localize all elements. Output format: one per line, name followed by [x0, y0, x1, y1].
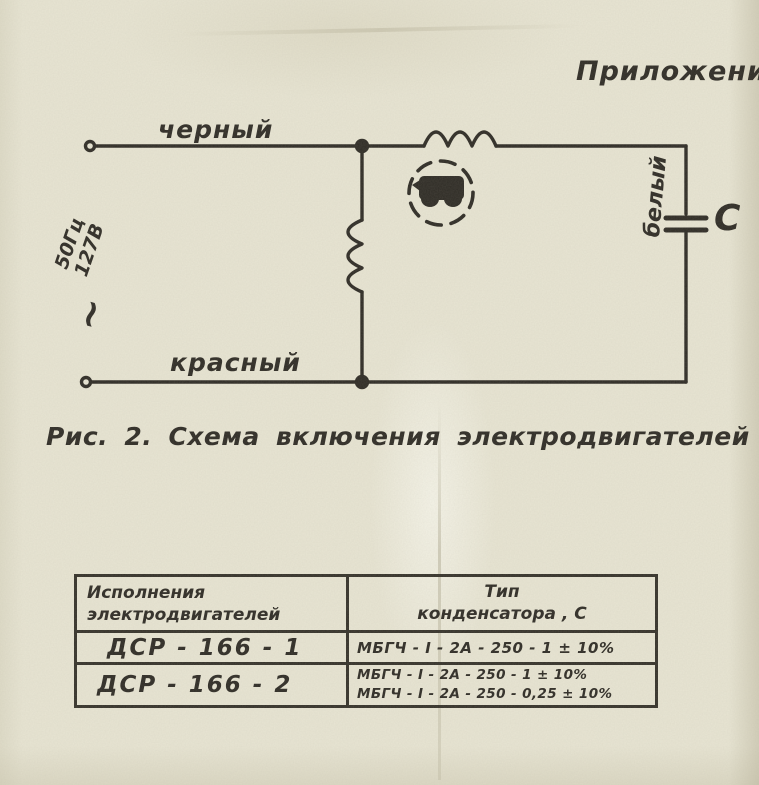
motor-type-1: ДСР - 166 - 1: [107, 635, 302, 661]
table-row: ДСР - 166 - 1: [77, 633, 349, 665]
table-header-capacitor-line1: Тип: [349, 581, 655, 603]
top-wire-label: черный: [158, 115, 273, 144]
appendix-heading: Приложение: [576, 56, 759, 87]
figure-caption: Рис. 2. Схема включения электродвигателе…: [46, 422, 750, 451]
motor-symbol: [409, 161, 473, 225]
bottom-wire-label: красный: [170, 348, 301, 377]
main-winding-coil: [348, 220, 362, 292]
table-header-capacitor-line2: конденсатора , С: [349, 603, 655, 625]
source-terminal-bottom: [82, 378, 91, 387]
junction-dot-bottom: [357, 377, 368, 388]
motor-type-2: ДСР - 166 - 2: [97, 672, 292, 698]
table-header-capacitor-type: Тип конденсатора , С: [349, 577, 655, 633]
table-header-motor-line1: Исполнения: [87, 582, 346, 604]
aux-winding-coil: [424, 132, 496, 146]
table-header-motor-versions: Исполнения электродвигателей: [77, 577, 349, 633]
table-row: МБГЧ - I - 2А - 250 - 1 ± 10%: [349, 633, 655, 665]
junction-dot-top: [357, 141, 368, 152]
capacitor-type-2-line2: МБГЧ - I - 2А - 250 - 0,25 ± 10%: [357, 685, 655, 704]
capacitor-symbol: [666, 218, 706, 230]
capacitor-type-2-line1: МБГЧ - I - 2А - 250 - 1 ± 10%: [357, 666, 655, 685]
capacitor-spec-table: Исполнения электродвигателей Тип конденс…: [74, 574, 658, 708]
table-header-motor-line2: электродвигателей: [87, 604, 346, 626]
source-terminal-top: [86, 142, 95, 151]
capacitor-label: C: [714, 198, 740, 239]
capacitor-type-1: МБГЧ - I - 2А - 250 - 1 ± 10%: [357, 639, 615, 657]
table-row: ДСР - 166 - 2: [77, 665, 349, 705]
table-row: МБГЧ - I - 2А - 250 - 1 ± 10% МБГЧ - I -…: [349, 665, 655, 705]
